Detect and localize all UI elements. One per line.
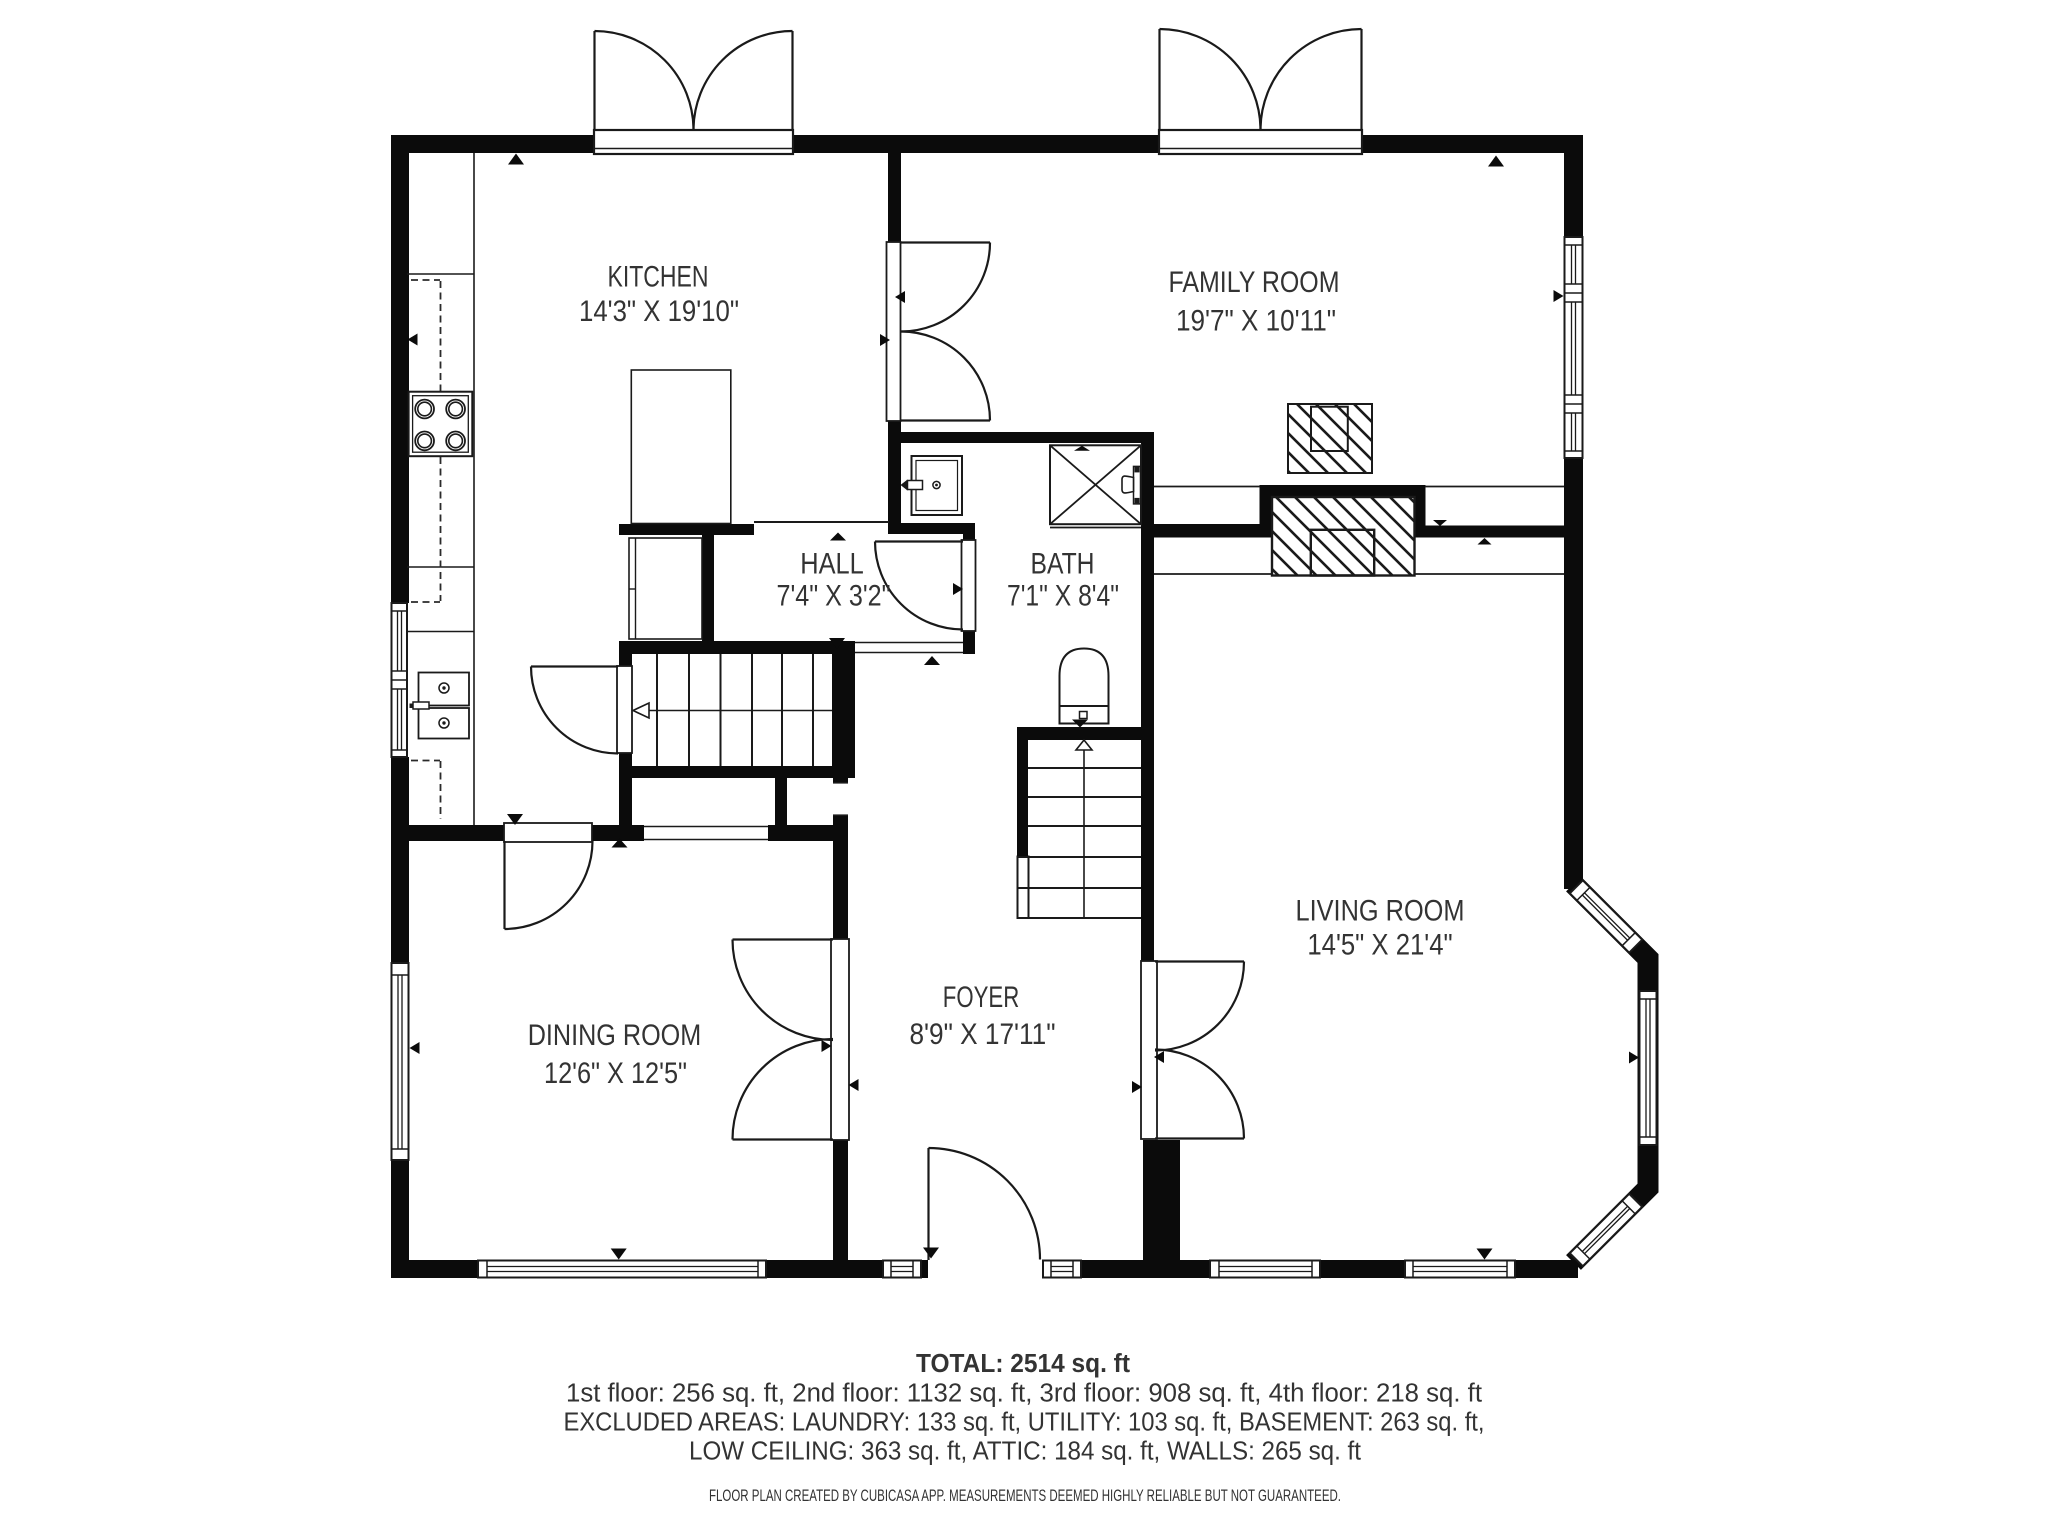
svg-text:HALL: HALL [800,549,864,581]
svg-text:19'7" X 10'11": 19'7" X 10'11" [1176,306,1336,338]
svg-text:FAMILY ROOM: FAMILY ROOM [1169,267,1340,299]
svg-text:12'6" X 12'5": 12'6" X 12'5" [544,1058,687,1090]
svg-text:8'9" X 17'11": 8'9" X 17'11" [910,1019,1056,1051]
svg-text:7'4" X 3'2": 7'4" X 3'2" [777,581,891,613]
svg-text:14'3" X 19'10": 14'3" X 19'10" [579,296,739,328]
svg-text:7'1" X 8'4": 7'1" X 8'4" [1007,581,1119,613]
svg-text:LOW CEILING: 363 sq. ft, ATTIC: LOW CEILING: 363 sq. ft, ATTIC: 184 sq. … [689,1438,1361,1466]
svg-text:FOYER: FOYER [943,982,1020,1014]
svg-text:LIVING ROOM: LIVING ROOM [1296,896,1465,928]
svg-text:FLOOR PLAN CREATED BY CUBICASA: FLOOR PLAN CREATED BY CUBICASA APP. MEAS… [709,1486,1341,1505]
svg-text:14'5" X 21'4": 14'5" X 21'4" [1307,930,1452,962]
svg-text:BATH: BATH [1031,549,1095,581]
svg-text:DINING ROOM: DINING ROOM [528,1020,702,1052]
svg-text:KITCHEN: KITCHEN [608,262,709,294]
svg-text:EXCLUDED AREAS: LAUNDRY: 133 s: EXCLUDED AREAS: LAUNDRY: 133 sq. ft, UTI… [564,1409,1485,1437]
svg-text:1st floor: 256 sq. ft, 2nd flo: 1st floor: 256 sq. ft, 2nd floor: 1132 s… [566,1380,1482,1408]
svg-text:TOTAL: 2514 sq. ft: TOTAL: 2514 sq. ft [916,1350,1130,1378]
